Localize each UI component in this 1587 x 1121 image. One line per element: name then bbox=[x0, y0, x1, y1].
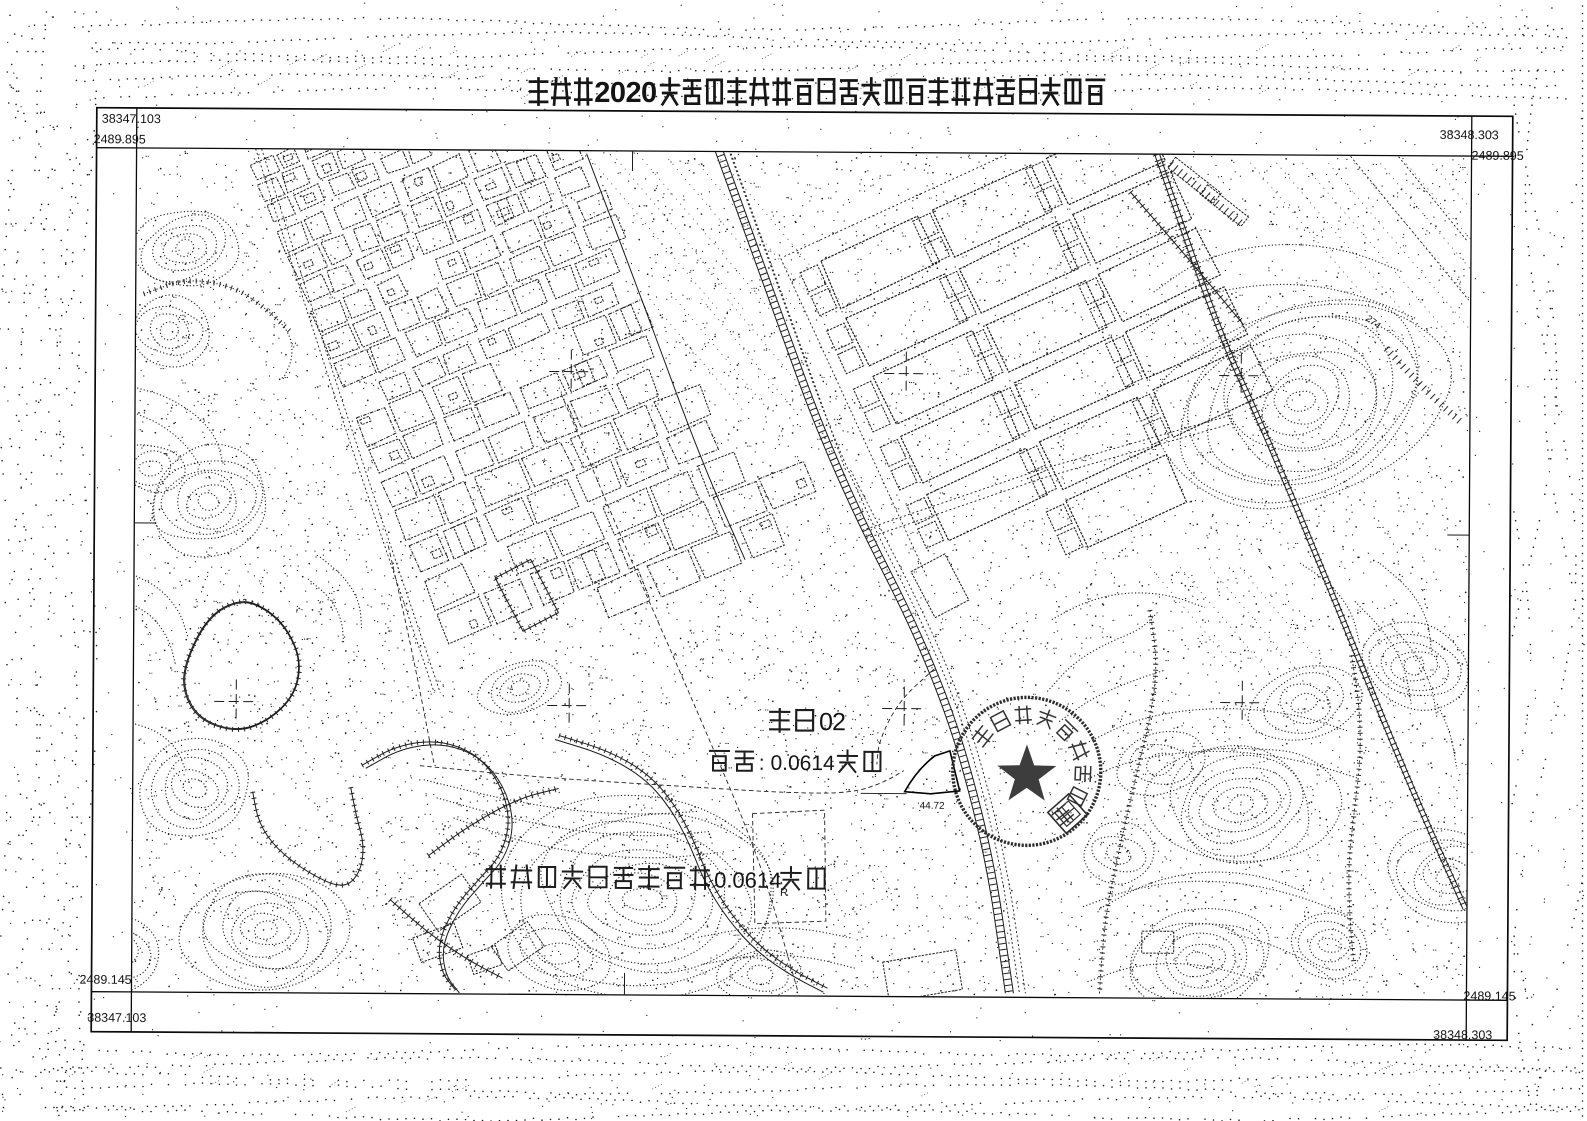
svg-text:2489.145: 2489.145 bbox=[1463, 989, 1515, 1003]
svg-text:38347.103: 38347.103 bbox=[87, 1011, 146, 1025]
svg-text:0.0614: 0.0614 bbox=[714, 867, 781, 892]
svg-text:38348.303: 38348.303 bbox=[1440, 128, 1499, 142]
svg-text:2489.145: 2489.145 bbox=[79, 973, 131, 987]
svg-text:2020: 2020 bbox=[594, 77, 656, 109]
svg-text:2489.895: 2489.895 bbox=[94, 132, 146, 146]
svg-text:2489.895: 2489.895 bbox=[1472, 149, 1524, 163]
svg-text:38347.103: 38347.103 bbox=[102, 112, 161, 126]
svg-text:38348.303: 38348.303 bbox=[1433, 1028, 1492, 1042]
svg-text:02: 02 bbox=[819, 708, 845, 736]
svg-text:: 0.0614: : 0.0614 bbox=[759, 752, 835, 775]
svg-text:44.72: 44.72 bbox=[920, 801, 946, 812]
